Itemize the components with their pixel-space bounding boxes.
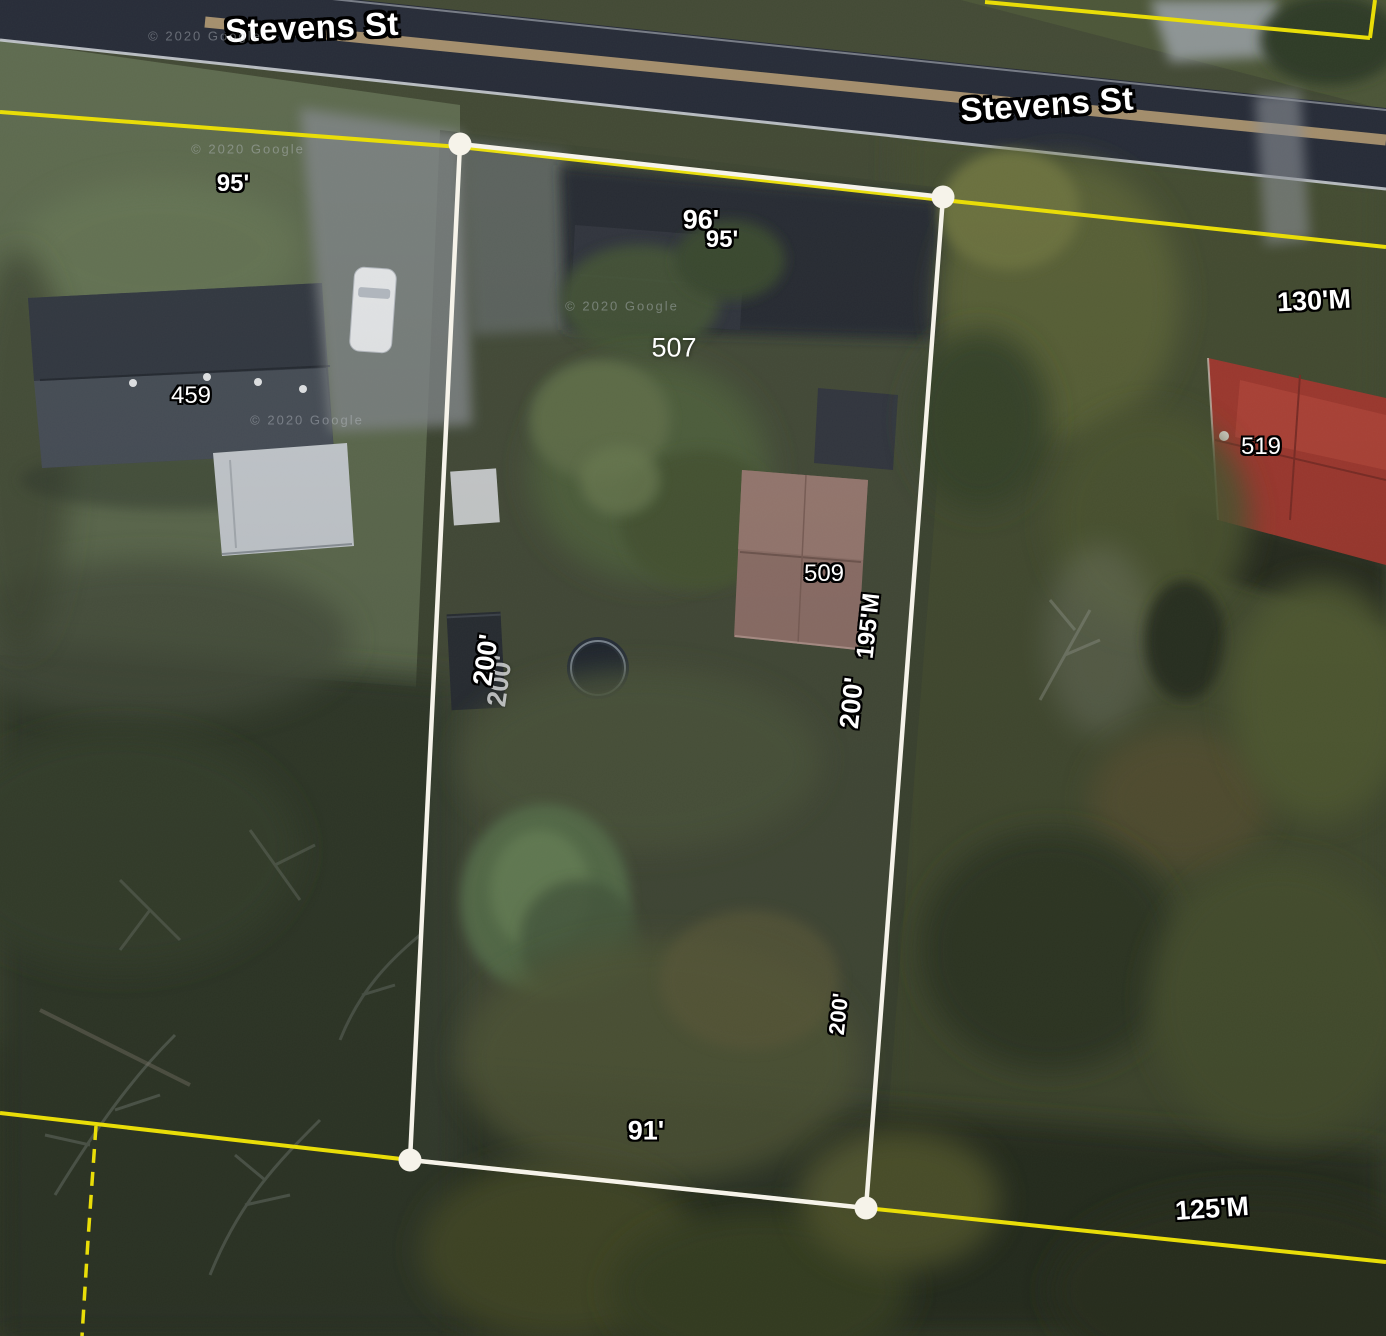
parcel-corner-marker: [449, 133, 472, 156]
parcel-corner-marker: [932, 186, 955, 209]
selected-parcel-outline: [399, 133, 955, 1220]
parcel-corner-marker: [399, 1149, 422, 1172]
satellite-imagery: [0, 0, 1386, 1336]
map-canvas[interactable]: Stevens StStevens St95'96'95'507459130'M…: [0, 0, 1386, 1336]
parcel-corner-marker: [855, 1197, 878, 1220]
